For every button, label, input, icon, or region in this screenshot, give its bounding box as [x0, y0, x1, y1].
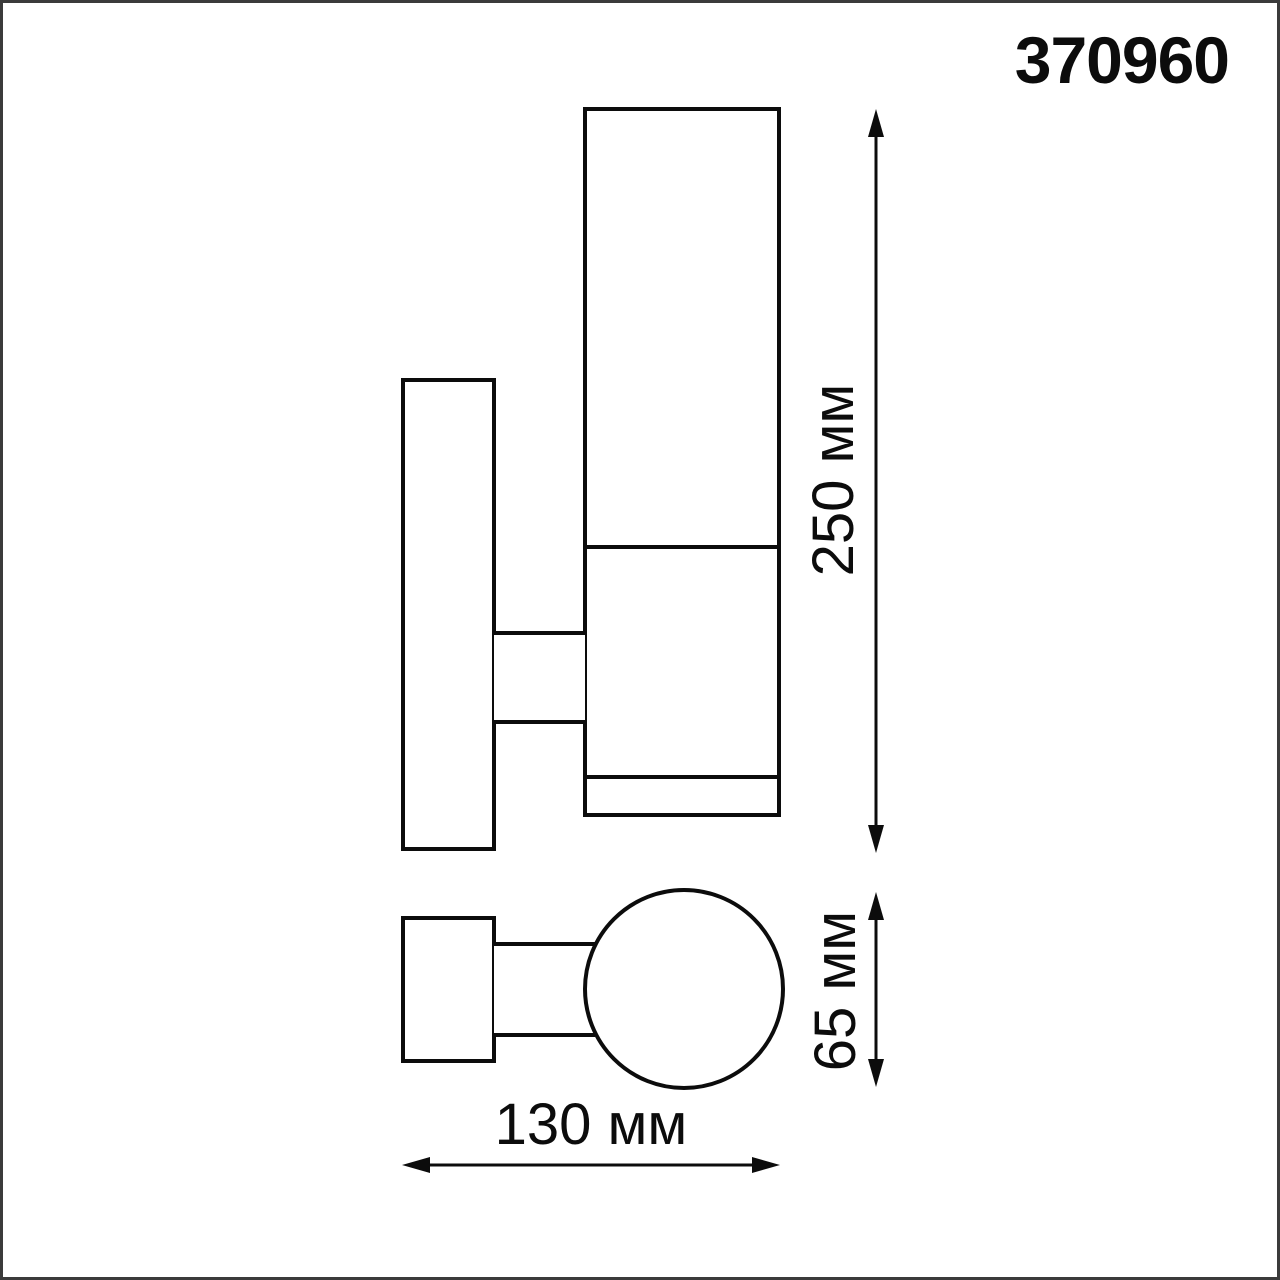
height-dimension-label: 250 мм: [804, 330, 864, 630]
width-dimension-label: 130 мм: [441, 1095, 741, 1155]
side-view-bottom-cap-line: [583, 775, 781, 779]
width-dimension-arrow: [402, 1157, 780, 1173]
technical-drawing-canvas: 370960 250 мм 65 мм 130 мм: [0, 0, 1280, 1280]
top-view-mounting-bracket: [494, 942, 595, 1037]
top-view-wall-plate: [401, 916, 496, 1063]
side-view-lamp-cylinder: [583, 107, 781, 817]
depth-dimension-arrow: [868, 892, 884, 1087]
product-number: 370960: [1015, 27, 1229, 93]
top-view-lamp-circle: [583, 888, 785, 1090]
height-dimension-arrow: [868, 109, 884, 853]
side-view-wall-plate: [401, 378, 496, 851]
side-view-diffuser-seam-line: [583, 545, 781, 549]
side-view-mounting-bracket: [494, 631, 585, 724]
depth-dimension-label: 65 мм: [806, 841, 866, 1141]
